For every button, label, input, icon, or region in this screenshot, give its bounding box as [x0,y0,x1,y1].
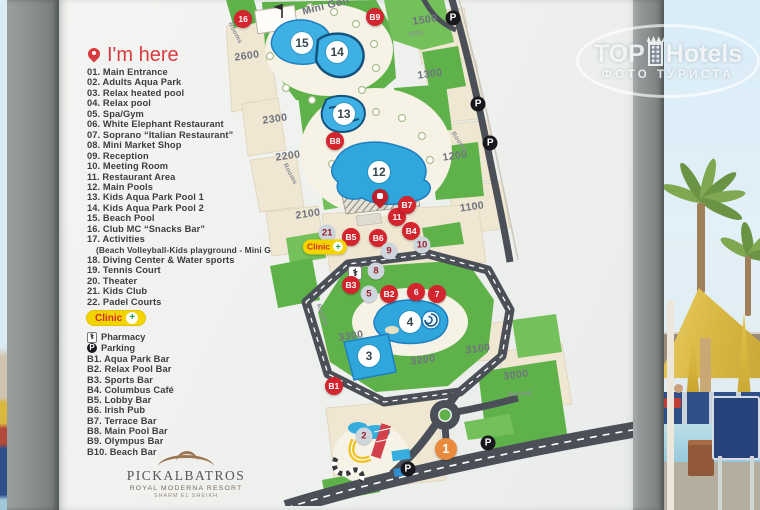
watermark-tagline: ФОТО ТУРИСТА [602,69,734,81]
legend-bar-item: B2. Relax Pool Bar [87,364,174,374]
map-marker: B2 [380,285,398,303]
map-marker: B1 [325,377,343,395]
map-marker: 7 [428,285,446,303]
legend-bar-item: B1. Aqua Park Bar [87,354,174,364]
parking-label: Parking [101,343,135,354]
parking-marker: P [400,462,415,477]
map-marker: 16 [234,10,252,28]
watermark-brand-top: TOP [594,42,645,67]
map-marker: 9 [381,242,398,259]
legend-title: I'm here [87,44,179,67]
map-marker: B3 [342,276,360,294]
watermark-building-icon [648,42,663,66]
watermark-brand-hotels: Hotels [666,42,742,67]
clinic-badge: Clinic + [87,311,145,325]
map-marker: B8 [326,132,344,150]
legend-bar-item: B3. Sports Bar [87,375,174,385]
tophotels-watermark: TOP Hotels ФОТО ТУРИСТА [576,24,760,98]
map-marker: 12 [368,161,390,183]
pharmacy-icon: ⚕ [87,332,97,343]
map-marker: B9 [366,8,384,26]
legend-services: ⚕ Pharmacy P Parking [87,332,145,354]
legend-bar-item: B4. Columbus Café [87,385,174,395]
parking-marker: P [471,97,486,112]
map-marker: 6 [407,283,425,301]
wooden-side-table [688,440,714,476]
map-marker: 1 [435,438,457,460]
clinic-badge: Clinic [303,239,347,254]
map-marker: B7 [398,196,416,214]
legend-bar-list: B1. Aqua Park BarB2. Relax Pool BarB3. S… [87,354,174,457]
parking-icon: P [87,343,97,353]
map-marker: 5 [360,285,377,302]
resort-map: Mini Golf1500VillaRooms2600130023002200R… [226,0,644,506]
green-cross-icon: + [126,312,138,324]
im-here-pin [379,204,381,206]
map-marker: 3 [358,345,380,367]
map-marker: 10 [414,236,431,253]
map-marker: 2 [355,428,372,445]
clinic-label: Clinic [95,313,122,324]
legend-bar-item: B6. Irish Pub [87,405,174,415]
umbrella-pole [667,300,674,510]
map-marker-layer: 16B9P151413B812PP11B7B421B5B6Clinic1098⚕… [226,0,644,506]
legend-bar-item: B8. Main Pool Bar [87,426,174,436]
person [674,384,683,393]
legend-bar-item: B9. Olympus Bar [87,436,174,446]
pharmacy-row: ⚕ Pharmacy [87,332,145,343]
legend-bar-item: B5. Lobby Bar [87,395,174,405]
sun-lounger [712,396,760,510]
parking-marker: P [481,435,496,450]
parking-row: P Parking [87,343,145,354]
location-pin-icon [87,47,101,65]
map-marker: 15 [291,32,313,54]
map-marker: 14 [326,41,348,63]
resort-map-sign-board: I'm here 01. Main Entrance02. Adults Aqu… [59,0,637,510]
pharmacy-label: Pharmacy [101,332,145,343]
map-marker: 13 [333,103,355,125]
parking-marker: P [445,11,460,26]
photo-of-resort-map-sign: I'm here 01. Main Entrance02. Adults Aqu… [0,0,760,510]
parking-marker: P [483,136,498,151]
legend-bar-item: B7. Terrace Bar [87,416,174,426]
map-marker: 4 [399,311,421,333]
map-marker: 8 [368,263,385,280]
sign-post-left [7,0,59,510]
legend-title-text: I'm here [107,44,179,67]
logo-mountain-icon [158,455,214,467]
